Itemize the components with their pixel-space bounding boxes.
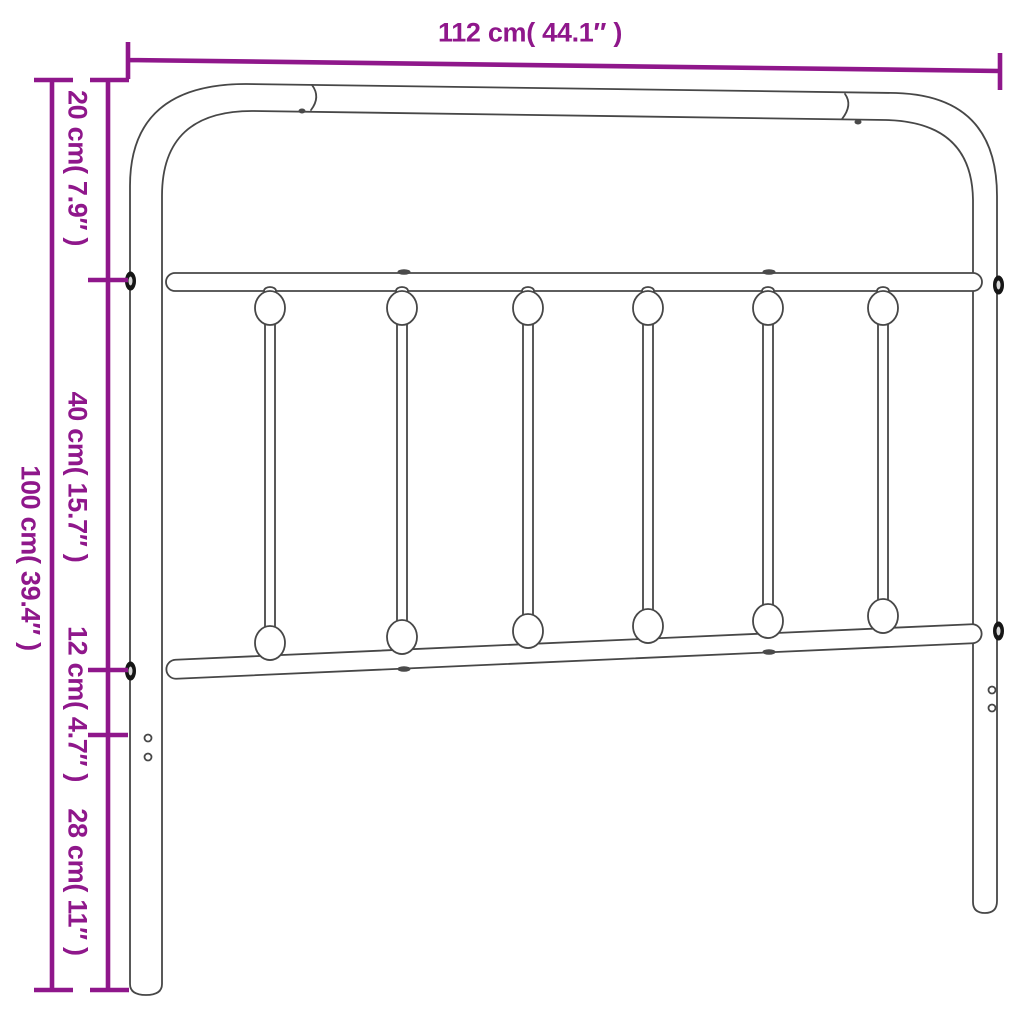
spindle xyxy=(868,287,898,633)
frame-tube-outline xyxy=(130,84,997,995)
seam-dot-right xyxy=(855,120,862,125)
dim-label-bottom-section: 28 cm( 11″ ) xyxy=(62,808,93,955)
diagram-canvas: 112 cm( 44.1″ ) 20 cm( 7.9″ ) 40 cm( 15.… xyxy=(0,0,1024,1024)
seam-dot-left xyxy=(299,109,306,114)
spindle xyxy=(753,287,783,638)
dim-label-middle-section: 40 cm( 15.7″ ) xyxy=(62,392,93,563)
leg-hole xyxy=(989,705,996,712)
top-rail xyxy=(166,273,982,291)
dimension-lines xyxy=(34,42,1000,990)
rail-bolt-dot xyxy=(763,269,776,275)
dim-label-total-height: 100 cm( 39.4″ ) xyxy=(15,465,46,651)
leg-hole xyxy=(145,754,152,761)
bottom-rail xyxy=(166,624,982,679)
headboard-drawing xyxy=(0,0,1024,1024)
spindle xyxy=(513,287,543,648)
spindle xyxy=(255,287,285,660)
headboard-frame xyxy=(130,84,997,995)
dim-label-width: 112 cm( 44.1″ ) xyxy=(438,18,622,49)
dim-label-top-section: 20 cm( 7.9″ ) xyxy=(62,90,93,246)
rails xyxy=(166,273,982,679)
spindle xyxy=(633,287,663,643)
spindles xyxy=(255,287,898,660)
rail-bolt-dot xyxy=(398,666,411,672)
leg-hole xyxy=(145,735,152,742)
spindle xyxy=(387,287,417,654)
rail-bolt-dot xyxy=(763,649,776,655)
dim-label-rail-section: 12 cm( 4.7″ ) xyxy=(62,626,93,782)
segment-dimension-line xyxy=(88,80,129,990)
rail-bolt-dot xyxy=(398,269,411,275)
width-dimension-line xyxy=(128,42,1000,90)
fittings xyxy=(125,269,1004,760)
leg-hole xyxy=(989,687,996,694)
